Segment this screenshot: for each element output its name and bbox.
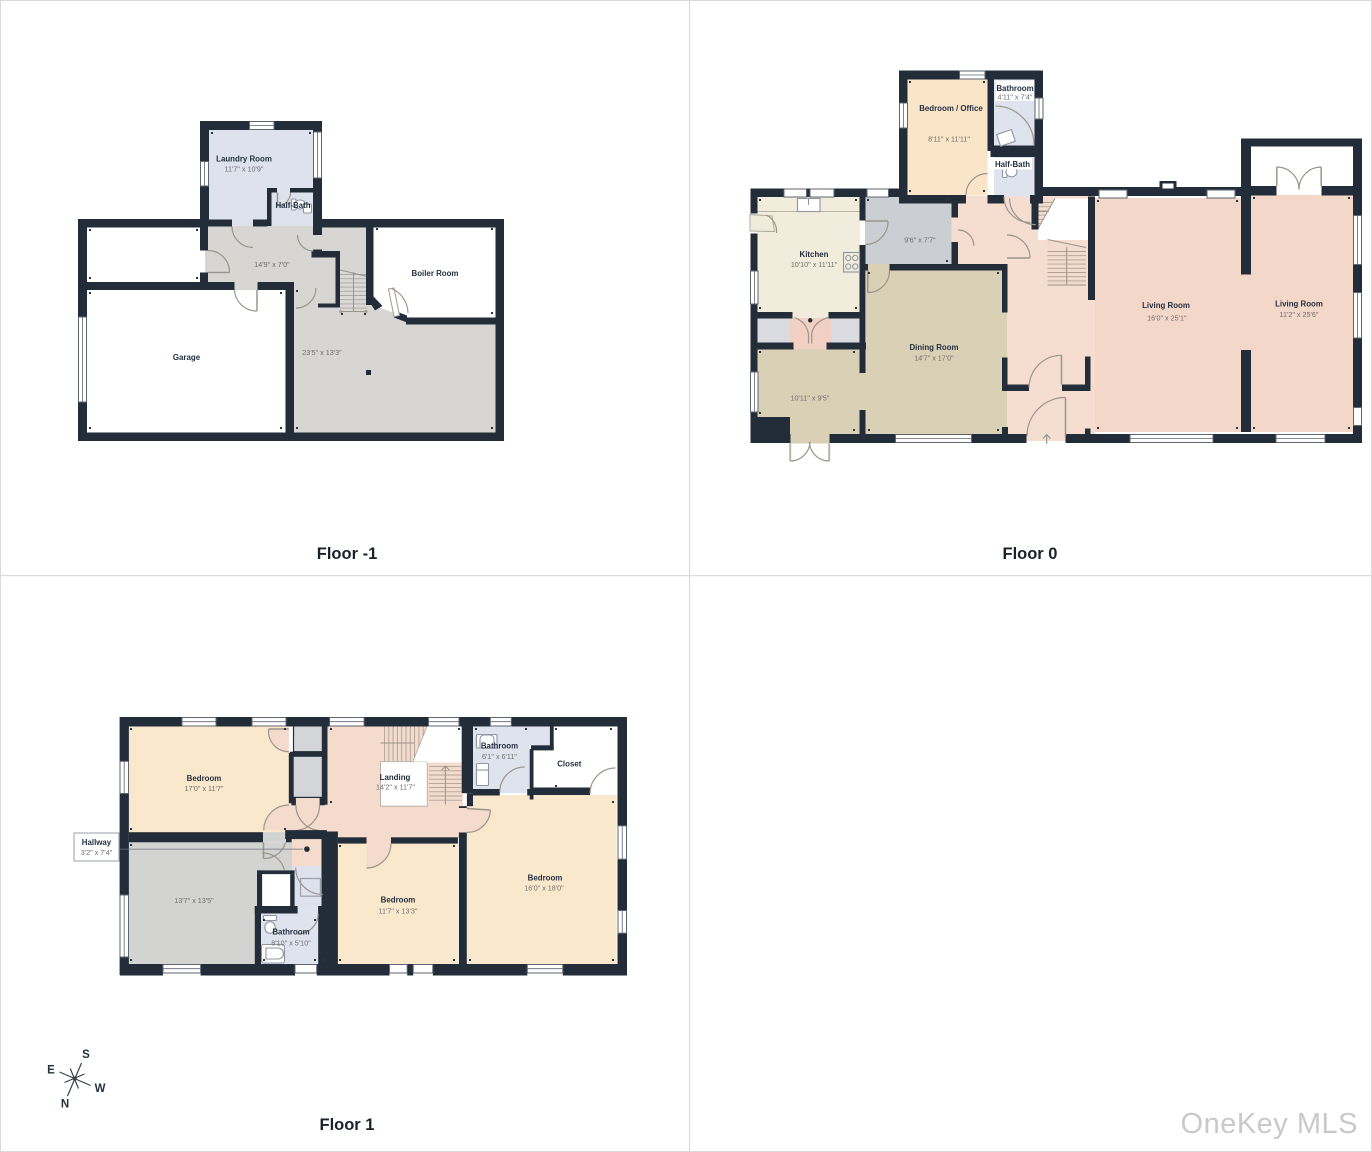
svg-text:Bedroom: Bedroom <box>187 774 222 783</box>
svg-text:Landing: Landing <box>380 773 411 782</box>
svg-text:14'2" x 11'7": 14'2" x 11'7" <box>376 783 415 792</box>
svg-text:8'11" x 11'11": 8'11" x 11'11" <box>928 135 970 144</box>
svg-text:10'11" x 9'5": 10'11" x 9'5" <box>791 394 830 403</box>
svg-text:Bathroom: Bathroom <box>481 742 518 751</box>
svg-text:S: S <box>82 1049 90 1061</box>
svg-text:Bedroom: Bedroom <box>381 896 416 905</box>
svg-text:16'0" x 25'1": 16'0" x 25'1" <box>1147 314 1187 323</box>
svg-text:9'6" x 7'7": 9'6" x 7'7" <box>904 236 936 245</box>
svg-text:Bedroom / Office: Bedroom / Office <box>919 104 983 113</box>
svg-text:Half-Bath: Half-Bath <box>995 160 1030 169</box>
svg-text:Living Room: Living Room <box>1275 300 1323 309</box>
svg-text:E: E <box>47 1065 55 1077</box>
svg-text:4'11" x 7'4": 4'11" x 7'4" <box>998 93 1033 102</box>
svg-text:Floor 1: Floor 1 <box>319 1116 374 1134</box>
svg-text:11'7" x 13'3": 11'7" x 13'3" <box>379 907 418 916</box>
svg-text:14'9" x 7'0": 14'9" x 7'0" <box>254 260 290 269</box>
svg-text:Boiler Room: Boiler Room <box>412 269 459 278</box>
svg-text:23'5" x 13'3": 23'5" x 13'3" <box>302 348 342 357</box>
svg-text:16'0" x 18'0": 16'0" x 18'0" <box>524 884 564 893</box>
svg-text:Floor 0: Floor 0 <box>1002 545 1057 563</box>
svg-text:Garage: Garage <box>173 353 201 362</box>
svg-text:11'2" x 25'6": 11'2" x 25'6" <box>1280 310 1319 319</box>
svg-text:Half-Bath: Half-Bath <box>275 201 310 210</box>
svg-text:Bathroom: Bathroom <box>272 928 309 937</box>
svg-text:6'1" x 6'11": 6'1" x 6'11" <box>482 752 517 761</box>
svg-text:10'10" x 11'11": 10'10" x 11'11" <box>791 260 838 269</box>
svg-text:Laundry Room: Laundry Room <box>216 155 272 164</box>
svg-text:Living Room: Living Room <box>1142 301 1190 310</box>
svg-text:Hallway: Hallway <box>82 838 112 847</box>
svg-text:11'7" x 10'9": 11'7" x 10'9" <box>225 165 264 174</box>
svg-text:N: N <box>61 1099 69 1111</box>
svg-text:Dining Room: Dining Room <box>909 343 958 352</box>
svg-text:Kitchen: Kitchen <box>800 250 829 259</box>
svg-text:Floor -1: Floor -1 <box>317 545 378 563</box>
svg-text:14'7" x 17'0": 14'7" x 17'0" <box>914 354 954 363</box>
svg-text:W: W <box>95 1083 106 1095</box>
svg-text:17'0" x 11'7": 17'0" x 11'7" <box>185 784 224 793</box>
svg-text:13'7" x 13'5": 13'7" x 13'5" <box>174 896 214 905</box>
svg-text:Bedroom: Bedroom <box>528 874 563 883</box>
svg-text:3'2" x 7'4": 3'2" x 7'4" <box>81 848 113 857</box>
svg-text:OneKey MLS: OneKey MLS <box>1181 1108 1358 1140</box>
svg-text:Closet: Closet <box>557 760 581 769</box>
svg-text:8'10" x 5'10": 8'10" x 5'10" <box>271 939 311 948</box>
